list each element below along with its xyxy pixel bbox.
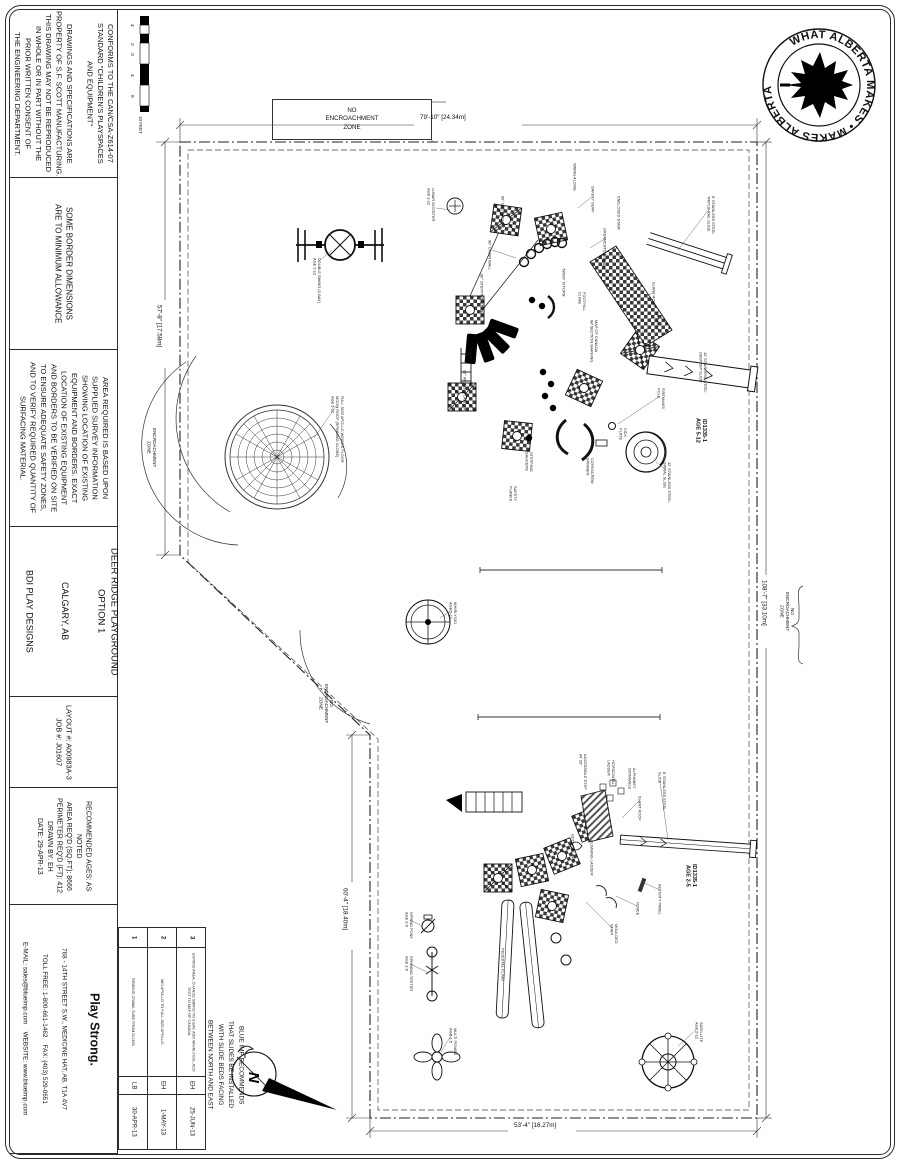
revision-row: 3EXPAND AREA, CHANGE SWING TO 2-BAY, ADD… <box>176 928 205 1149</box>
drawing-label: ACCESSIBLE STEP AT 16" <box>578 754 587 790</box>
revision-row: 1REMOVE CRAWL TUBE FROM ID1335LB30-APR-1… <box>119 928 147 1149</box>
drawing-label: MAP OF CANADA W/ SECTION MARKING <box>589 320 598 362</box>
drawing-label: WHIRLYGIG AGE 5-12 <box>448 602 457 624</box>
drawing-label: FENCE <box>635 902 640 915</box>
revision-table: 3EXPAND AREA, CHANGE SWING TO 2-BAY, ADD… <box>118 927 206 1150</box>
address-line: 768 - 14TH STREET S.W., MEDICINE HAT, AB… <box>58 930 69 1127</box>
titleblock-area-note: AREA REQUIRED IS BASED UPON SUPPLIED SUR… <box>10 350 118 527</box>
drawing-label: ALPHABET SCRAMBLE <box>627 768 636 789</box>
drawing-label: FULL SIZE APOLLO W/DECK FLOOR MOON ROOF … <box>330 396 344 463</box>
border-note-text: SOME BORDER DIMENSIONS ARE TO MINIMUM AL… <box>52 204 74 323</box>
dimension-left-lower: 60'-4" [18.40m] <box>341 888 348 930</box>
drawing-label: SWING ALONG <box>572 163 577 191</box>
titleblock-job: LAYOUT #: A00983A-3 JOB #: J01607 <box>10 697 118 788</box>
phone-line: TOLL FREE: 1-800-661-1462 FAX: (403) 529… <box>39 930 50 1127</box>
drawing-label: 90° STEPPING STONES <box>479 274 484 318</box>
drawing-label: STEPPING SAUCERS <box>524 452 533 472</box>
drawing-label: SPRING PONY AGE 2-5 <box>404 912 413 939</box>
scale-tick-label: 2 <box>129 43 134 46</box>
drawing-label: KICK PLATE <box>618 428 627 440</box>
drawing-label: 12' STAINLESS STEEL SPIRAL SLIDE <box>662 462 671 503</box>
revision-by: EH <box>177 1077 205 1095</box>
drawing-label: DOUBLE SWING (2-BAY) AGE 2-12 <box>312 258 321 303</box>
drawing-label: STAIR <box>601 258 606 269</box>
revision-date: 1-MAY-13 <box>148 1095 176 1149</box>
drawing-label: TWIST 'N TURN <box>561 268 566 296</box>
drawing-label: 90° WOBBLE LADDER <box>462 370 467 410</box>
drawing-label: LUNAR BOOSTER AGE 2-12 <box>426 188 435 221</box>
drawing-label: SAFETY PLANKS <box>508 486 517 501</box>
drawing-label: ACTIVITY PANEL <box>657 884 662 915</box>
job-numbers: LAYOUT #: A00983A-3 JOB #: J01607 <box>53 705 73 780</box>
drawing-label: SATELLITE AGE 5-12 <box>694 1022 703 1042</box>
drawing-label: HORIZONTAL LADDER <box>606 760 615 785</box>
drawing-label: FOOTHILL CLIMB <box>577 292 586 311</box>
revision-note: EXPAND AREA, CHANGE SWING TO 2-BAY, ADD … <box>177 948 205 1077</box>
titleblock-border-note: SOME BORDER DIMENSIONS ARE TO MINIMUM AL… <box>10 178 118 350</box>
project-title: DEER RIDGE PLAYGROUND OPTION 1 <box>94 548 120 676</box>
dimension-right: 108'-7" [33.10m] <box>760 580 767 626</box>
drawing-label: SLANT ROOF <box>637 796 642 821</box>
dimension-bottom: 53'-4" [16.27m] <box>514 1122 556 1129</box>
zone-label-right: NO ENCROACHMENT ZONE <box>779 592 795 631</box>
scale-tick-label: 8 <box>129 95 134 98</box>
project-client: BDI PLAY DESIGNS <box>23 548 35 676</box>
drawing-label: PEDESTAL CLIMB <box>500 948 505 981</box>
structure-id-5-12: ID1335-1 AGE 5-12 <box>694 418 707 443</box>
zone-label-left: ENCROACHMENT ZONE <box>146 428 157 467</box>
scale-tick-label: 0 <box>129 53 134 56</box>
revision-num: 1 <box>119 928 147 948</box>
dimension-top: 79'-10" [24.34m] <box>420 114 466 121</box>
no-encroachment-box: NO ENCROACHMENT ZONE <box>272 99 432 140</box>
revision-date: 30-APR-13 <box>119 1095 147 1149</box>
drawing-label: 8' STAINLESS STEEL TRIPLE RAIL SLIDE <box>706 196 715 235</box>
area-note-text: AREA REQUIRED IS BASED UPON SUPPLIED SUR… <box>17 362 110 513</box>
revision-by: LB <box>119 1077 147 1095</box>
drawing-label: SLANT ROOF <box>651 282 656 307</box>
scale-unit-label: 10 FEET <box>138 116 143 134</box>
drawing-label: SAFETY SURF <box>590 186 595 213</box>
slide-install-note: BLUE IMP RECOMMENDS THAT SLIDES BE INSTA… <box>204 1020 246 1109</box>
web-line: E-MAIL: sales@blueimp.com WEBSITE: www.b… <box>19 930 30 1127</box>
conformance-text: CONFORMS TO THE CAN/CSA-Z614-07 STANDARD… <box>12 11 115 176</box>
revision-row: 2MID APOLLO TO FULL SIZE APOLLO.EH1-MAY-… <box>147 928 176 1149</box>
logo-tagline: Play Strong. <box>87 930 102 1127</box>
revision-date: 25-JUN-13 <box>177 1095 205 1149</box>
drawing-label: DREAMCATCHER <box>602 228 607 261</box>
structure-id-2-5: ID1335-1 AGE 2-5 <box>684 864 697 887</box>
drawing-label: FIREMAN'S POLE <box>656 388 665 409</box>
dimension-left-upper: 57'-8" [17.58m] <box>155 305 162 347</box>
drawing-label: 6' STAINLESS STEEL SLIDE <box>657 772 666 811</box>
revision-note: REMOVE CRAWL TUBE FROM ID1335 <box>119 948 147 1077</box>
drawing-label: MOULDED STAIR <box>609 924 618 943</box>
revision-note: MID APOLLO TO FULL SIZE APOLLO. <box>148 948 176 1077</box>
titleblock-project: DEER RIDGE PLAYGROUND OPTION 1 CALGARY, … <box>10 527 118 697</box>
drawing-label: 90° CROSSOVER <box>500 196 505 228</box>
drawing-label: CLIMBING LADDER <box>589 840 594 876</box>
drawing-sheet: CONFORMS TO THE CAN/CSA-Z614-07 STANDARD… <box>0 0 900 1164</box>
titleblock-conformance: CONFORMS TO THE CAN/CSA-Z614-07 STANDARD… <box>10 10 118 178</box>
drawing-label: CATWALK <box>655 312 660 330</box>
spec-list: RECOMMENDED AGES: AS NOTED AREA REQ'D (S… <box>35 788 93 904</box>
revision-by: EH <box>148 1077 176 1095</box>
drawing-label: 90° CHAIN WALL <box>487 240 492 271</box>
drawing-label: GECKO CLIMB <box>570 834 575 861</box>
project-location: CALGARY, AB <box>59 548 71 676</box>
drawing-label: 12' STAINLESS STEEL DEEP DIP SLIDE <box>698 352 707 393</box>
scale-tick-label: 4 <box>129 24 134 27</box>
drawing-label: SPINNING TEETER AGE 2-5 <box>404 956 413 991</box>
drawing-label: CORKSCREW SPINNER <box>585 458 594 484</box>
revision-num: 2 <box>148 928 176 948</box>
zone-label-diagonal: NO ENCROACHMENT ZONE <box>318 684 334 723</box>
titleblock-specs: RECOMMENDED AGES: AS NOTED AREA REQ'D (S… <box>10 788 118 905</box>
titleblock-logo: BLUE IMP ™ Play Strong. 768 - 14TH STREE… <box>10 905 118 1154</box>
drawing-label: ENCLOSED STAIR <box>616 196 621 230</box>
revision-num: 3 <box>177 928 205 948</box>
drawing-label: MULTI PONIES AGE 2-5 <box>448 1028 457 1055</box>
scale-tick-label: 4 <box>129 74 134 77</box>
